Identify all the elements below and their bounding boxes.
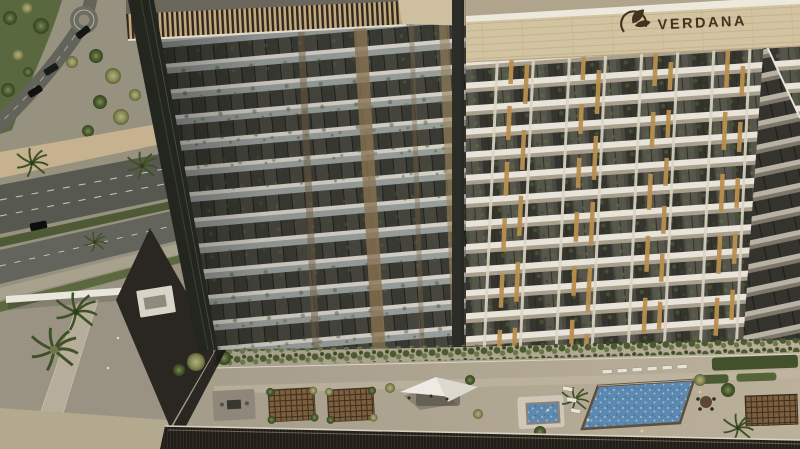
amenity-deck (170, 338, 800, 441)
pergola (325, 385, 378, 424)
deck-tree (721, 383, 735, 397)
pergola (266, 385, 319, 424)
right-tower: VERDANA (466, 0, 800, 358)
seating-pad (212, 389, 256, 421)
palm-crown-highlight (50, 346, 58, 354)
pergola (745, 394, 798, 426)
aerial-render: VERDANA (0, 0, 800, 449)
kids-pool (517, 395, 565, 429)
deck-tree (694, 374, 706, 386)
main-pool (582, 380, 694, 429)
render-canvas: VERDANA (0, 0, 800, 449)
